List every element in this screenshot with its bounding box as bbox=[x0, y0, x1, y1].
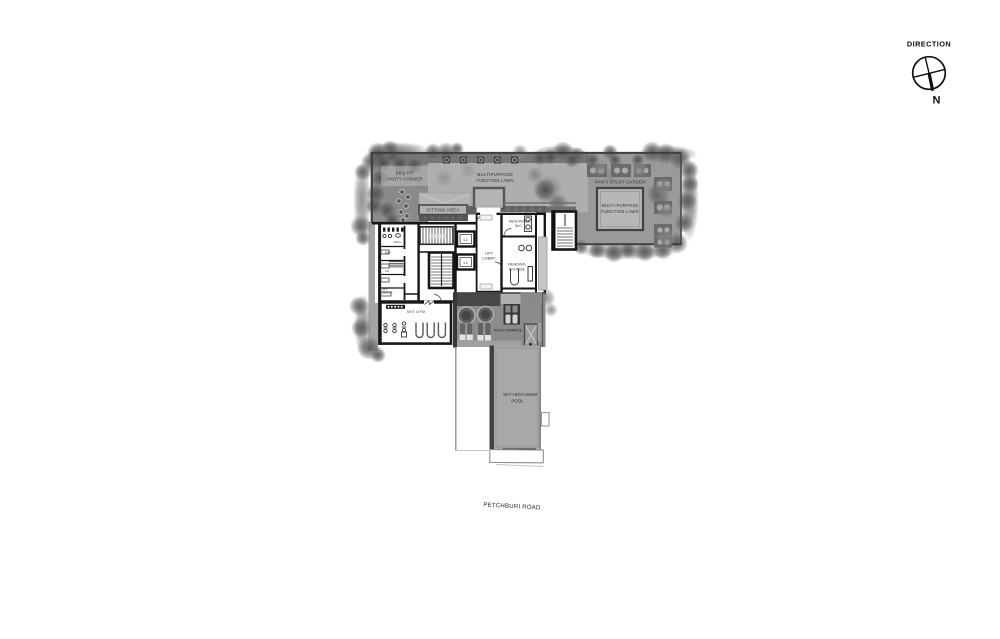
svg-text:PAW'S STUDY GARDEN: PAW'S STUDY GARDEN bbox=[595, 180, 646, 185]
svg-text:LOBBY: LOBBY bbox=[482, 256, 496, 261]
svg-text:MULTIPURPOSE: MULTIPURPOSE bbox=[477, 172, 513, 177]
svg-text:FUNCTION LAWN: FUNCTION LAWN bbox=[476, 178, 513, 183]
svg-text:N: N bbox=[933, 95, 941, 107]
svg-text:MULTI-PURPOSE: MULTI-PURPOSE bbox=[602, 203, 639, 208]
svg-text:LAV: LAV bbox=[385, 270, 390, 273]
svg-text:DIRECTION: DIRECTION bbox=[907, 40, 951, 49]
svg-text:SERVICE: SERVICE bbox=[382, 292, 393, 295]
svg-text:SKY HIGH SWIM: SKY HIGH SWIM bbox=[503, 392, 537, 397]
svg-text:KIDS ROOM: KIDS ROOM bbox=[509, 220, 530, 224]
svg-text:W.C.: W.C. bbox=[515, 224, 523, 228]
svg-text:PETCHBURI ROAD: PETCHBURI ROAD bbox=[483, 502, 541, 512]
svg-text:L1: L1 bbox=[463, 237, 468, 242]
svg-text:L1: L1 bbox=[463, 260, 468, 265]
svg-text:POOL TERRACE: POOL TERRACE bbox=[494, 329, 523, 333]
svg-text:LOUNGE: LOUNGE bbox=[509, 268, 526, 272]
svg-text:PARTY CORNER: PARTY CORNER bbox=[387, 177, 422, 182]
svg-text:SITTING AREA: SITTING AREA bbox=[427, 208, 460, 213]
svg-text:READING: READING bbox=[508, 263, 525, 267]
svg-text:POOL: POOL bbox=[511, 399, 524, 404]
svg-text:SKY GYM: SKY GYM bbox=[407, 310, 425, 314]
svg-text:FUNCTION LAWN: FUNCTION LAWN bbox=[601, 209, 638, 214]
svg-text:BBQ PIT: BBQ PIT bbox=[396, 171, 415, 176]
svg-text:HALL: HALL bbox=[394, 240, 402, 244]
svg-text:ELEC: ELEC bbox=[385, 252, 392, 255]
